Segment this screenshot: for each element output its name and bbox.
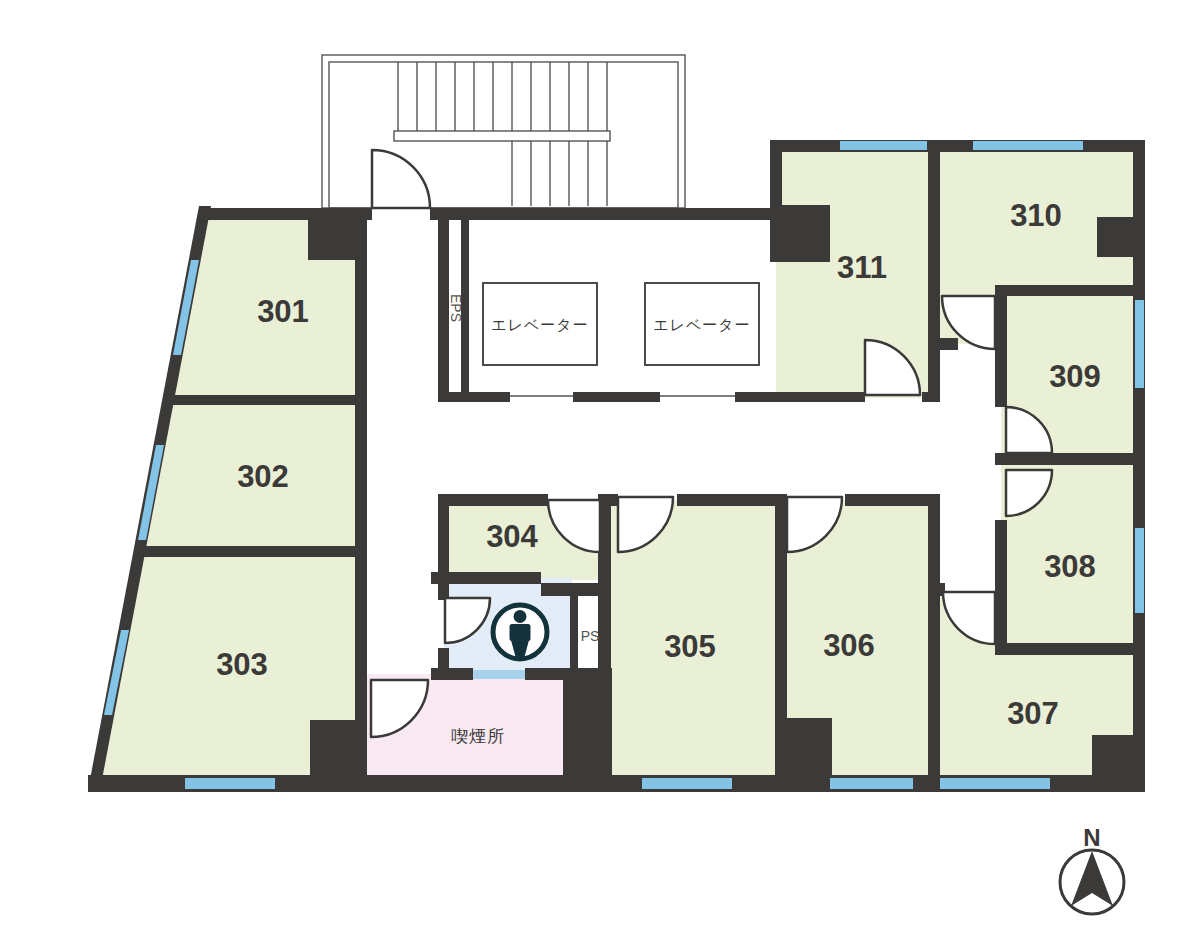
wall-311-right — [928, 148, 940, 402]
wall-308-left — [995, 520, 1007, 643]
window-right-308 — [1135, 528, 1144, 613]
wall-evhall-bottom-2 — [573, 392, 660, 402]
pillar-307 — [1092, 735, 1145, 790]
floor-plan-page: 301 302 303 304 305 306 307 308 309 310 … — [0, 0, 1200, 937]
window-bottom-305 — [642, 778, 732, 789]
wall-restroom-left-a — [438, 572, 449, 600]
wall-302-303 — [140, 546, 367, 557]
elevator-hall — [483, 283, 759, 396]
window-top-311 — [840, 141, 927, 150]
floor-plan-svg: 301 302 303 304 305 306 307 308 309 310 … — [0, 0, 1200, 937]
wall-evhall-bottom-1 — [438, 392, 510, 402]
door-stairwell — [372, 150, 430, 208]
room-304-label: 304 — [486, 519, 538, 554]
room-305-label: 305 — [664, 629, 716, 664]
window-bottom-307 — [940, 778, 1050, 789]
wall-309-308 — [995, 453, 1145, 465]
restroom-sign — [493, 605, 547, 659]
room-310-label: 310 — [1010, 198, 1062, 233]
wall-corridor-south-3 — [677, 494, 787, 506]
room-306-label: 306 — [823, 628, 875, 663]
room-309-label: 309 — [1049, 359, 1101, 394]
room-308-label: 308 — [1044, 549, 1096, 584]
room-311-label: 311 — [837, 250, 887, 285]
wall-308-bottom — [995, 643, 1145, 655]
window-right-309 — [1135, 300, 1144, 388]
pillar-303 — [310, 720, 367, 786]
wall-corridor-south-1 — [438, 494, 548, 506]
north-label: N — [1083, 824, 1100, 851]
window-bottom-306 — [830, 778, 913, 789]
stair-landing — [394, 131, 610, 141]
stair-treads-lower — [512, 141, 607, 206]
elevator-1-label: エレベーター — [491, 316, 588, 333]
smoking-area-label: 喫煙所 — [451, 727, 505, 746]
stair-treads-upper — [398, 62, 607, 131]
wall-top-mid — [430, 208, 782, 220]
ps-label: PS — [581, 628, 600, 644]
north-arrow-icon — [1071, 851, 1113, 906]
wall-corridor-south-4 — [845, 494, 940, 506]
room-302-label: 302 — [237, 459, 289, 494]
window-restroom — [473, 670, 525, 679]
room-307-label: 307 — [1007, 696, 1059, 731]
wall-ps-left — [570, 583, 578, 678]
window-top-310 — [973, 141, 1083, 150]
wall-restroom-bottom-1 — [431, 668, 473, 680]
wall-310-309 — [995, 285, 1145, 296]
wall-304-left — [438, 494, 449, 572]
wall-top-right-wing — [770, 140, 1145, 152]
pillar-305-306 — [775, 718, 832, 790]
room-301-label: 301 — [257, 294, 309, 329]
pillar-310 — [1097, 217, 1138, 257]
wall-309-left — [995, 285, 1007, 407]
window-bottom-303 — [185, 778, 275, 789]
wall-eps-left — [438, 208, 449, 402]
north-compass: N — [1060, 824, 1124, 914]
room-303-label: 303 — [216, 647, 268, 682]
pillar-311 — [770, 205, 830, 262]
wall-306-right — [928, 494, 940, 790]
wall-smoking-right-block — [563, 668, 612, 790]
elevator-2-label: エレベーター — [653, 316, 750, 333]
wall-301-302 — [168, 395, 367, 405]
wall-rooms-left-corridor — [355, 208, 367, 786]
eps-label: EPS — [448, 294, 464, 322]
wall-311-bottom-1 — [770, 392, 865, 402]
pillar-301 — [308, 214, 367, 260]
